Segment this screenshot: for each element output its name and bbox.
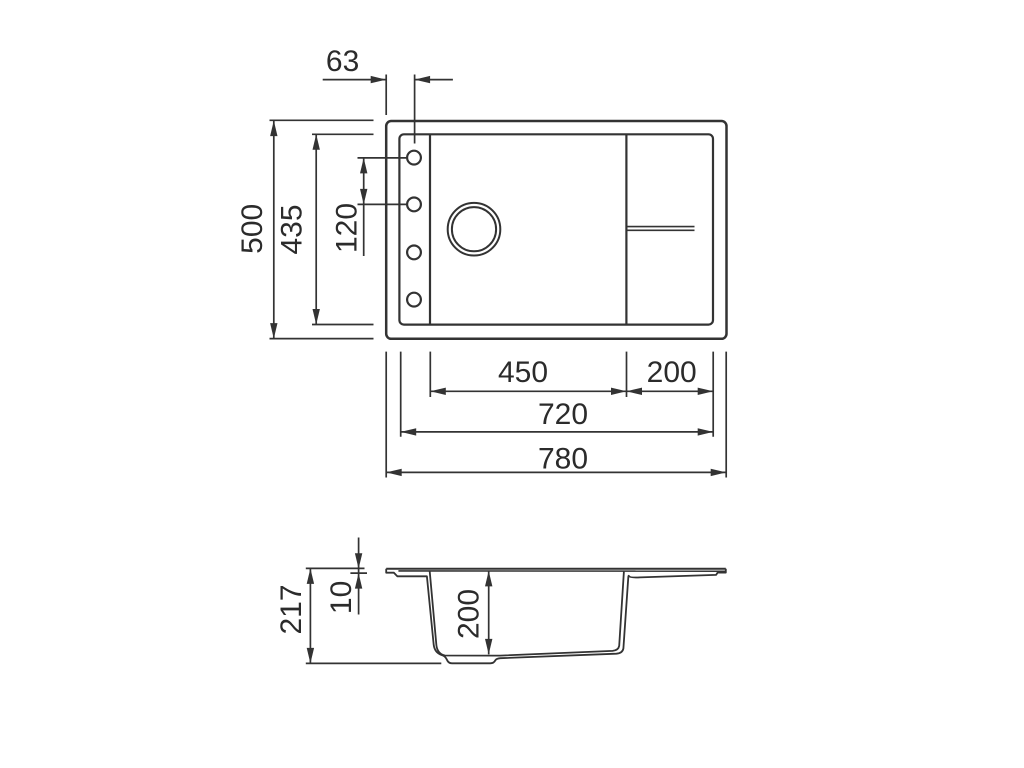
svg-text:10: 10	[325, 581, 358, 614]
svg-text:500: 500	[236, 204, 269, 254]
svg-text:435: 435	[276, 204, 309, 254]
svg-text:200: 200	[647, 356, 697, 389]
svg-text:217: 217	[275, 584, 308, 634]
svg-text:120: 120	[331, 203, 364, 253]
svg-text:450: 450	[498, 356, 548, 389]
svg-text:780: 780	[538, 443, 588, 476]
svg-text:63: 63	[326, 45, 359, 78]
svg-text:720: 720	[538, 398, 588, 431]
svg-text:200: 200	[453, 589, 486, 639]
